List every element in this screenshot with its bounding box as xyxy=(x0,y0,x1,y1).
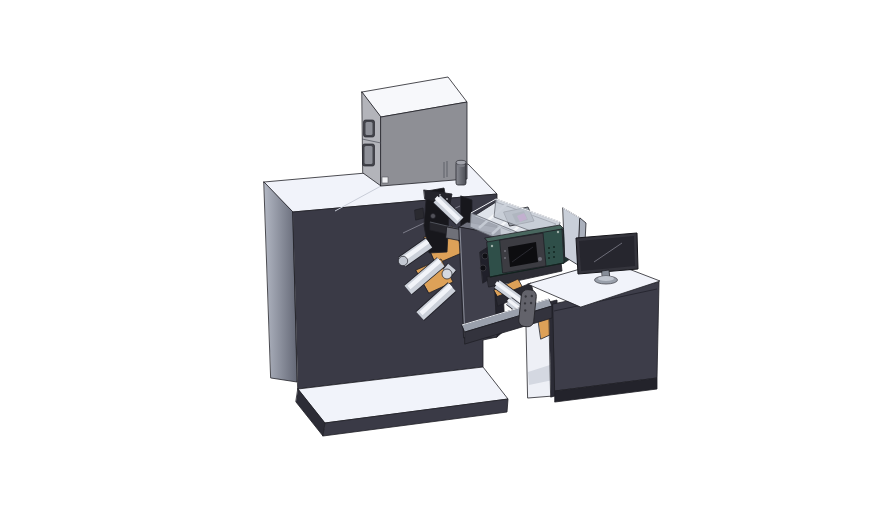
box-window-inner xyxy=(365,146,373,164)
cad-render-canvas xyxy=(0,0,888,522)
display-button xyxy=(538,257,542,261)
bay-knob xyxy=(480,265,486,271)
roller-stub xyxy=(442,267,452,279)
box-label-plate xyxy=(382,177,388,183)
monitor-base-top xyxy=(598,276,614,281)
bay-knob xyxy=(482,253,488,259)
operator-desk xyxy=(526,261,660,402)
supply-box xyxy=(362,77,467,186)
machine-scene xyxy=(0,0,888,522)
box-window-inner xyxy=(366,122,373,135)
exhaust-cylinder xyxy=(456,160,466,185)
bridge-handle-plate xyxy=(518,289,537,327)
